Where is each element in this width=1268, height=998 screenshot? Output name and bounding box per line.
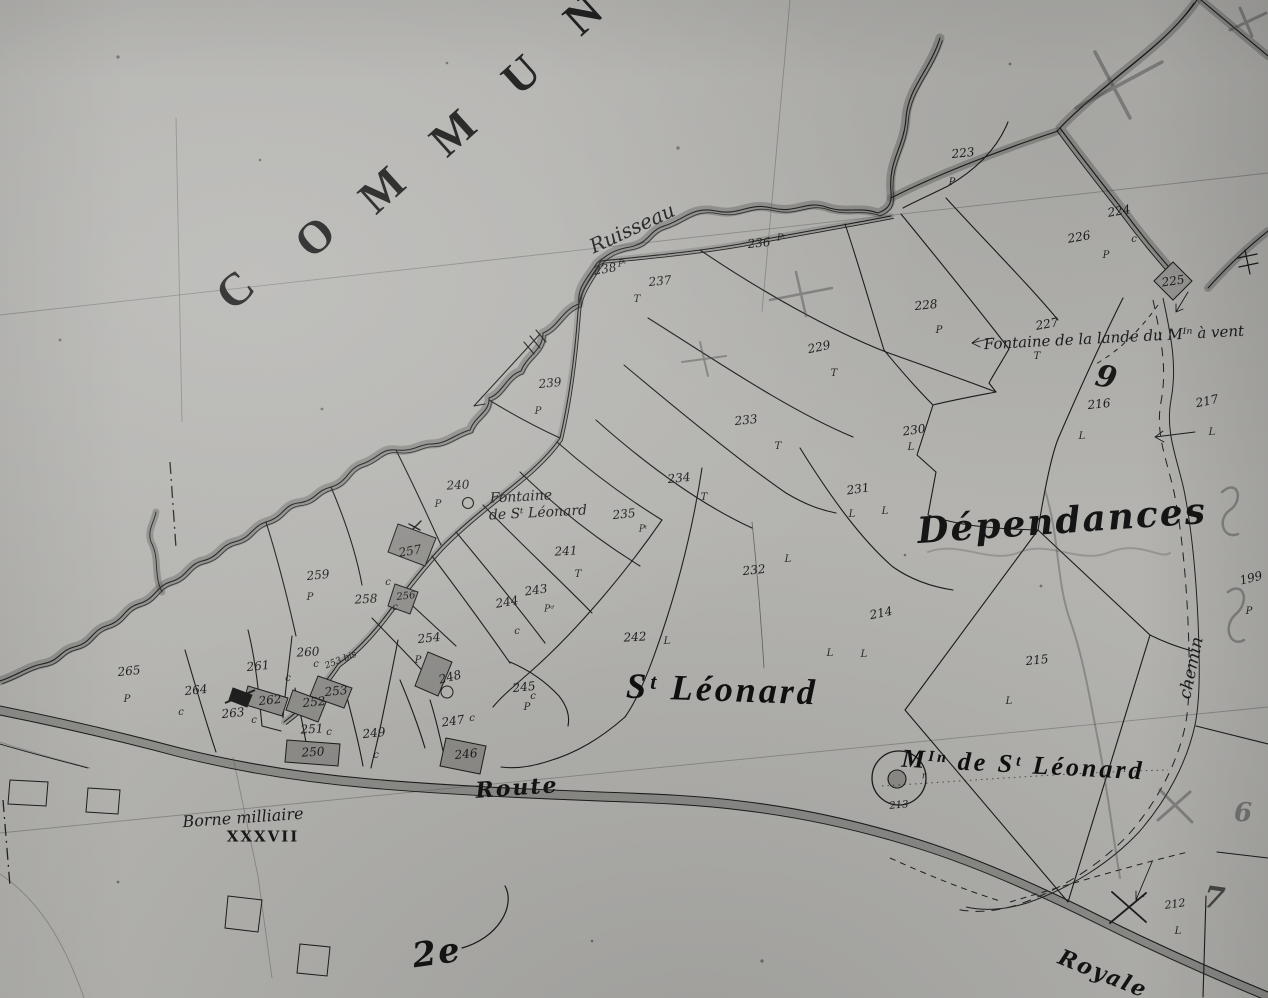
class-letter-label: c	[514, 627, 520, 637]
class-letter-label: L	[908, 443, 915, 453]
parcel-number-label: 244	[495, 594, 520, 610]
class-letter-label: c	[385, 578, 391, 588]
class-letter-label: P	[1103, 251, 1110, 261]
parcel-number-label: 252	[302, 695, 326, 709]
fontaine-stleonard-label-2: de Sᵗ Léonard	[489, 503, 588, 522]
class-letter-label: P	[1246, 607, 1253, 617]
cadastral-map-sheet: COMMUNRuisseauFontaine de la lande du Mᴵ…	[0, 0, 1268, 998]
parcel-number-label: 242	[623, 630, 647, 643]
commune-letter: C	[207, 262, 262, 318]
class-letter-label: Pᵗ	[618, 261, 626, 270]
parcel-number-label: 225	[1161, 273, 1185, 288]
class-letter-label: L	[1209, 428, 1216, 438]
parcel-number-label: 227	[1035, 316, 1060, 332]
parcel-number-label: 261	[246, 659, 270, 673]
pencil-numeral-6: 6	[1234, 800, 1252, 826]
parcel-number-label: 237	[648, 274, 672, 288]
parcel-number-label: 229	[807, 339, 832, 356]
parcel-number-label: 226	[1067, 229, 1092, 245]
commune-letter: N	[555, 0, 610, 43]
parcel-number-label: 249	[362, 726, 386, 740]
class-letter-label: P	[949, 178, 956, 188]
parcel-number-label: 259	[306, 568, 330, 582]
royale-label: Royale	[1055, 946, 1151, 998]
class-letter-label: c	[1131, 235, 1137, 245]
class-letter-label: P	[415, 656, 422, 666]
parcel-number-label: 263	[221, 706, 245, 720]
parcel-number-label: 217	[1195, 393, 1220, 410]
parcel-number-label: 212	[1164, 897, 1186, 911]
parcel-number-label: 260	[296, 645, 320, 658]
parcel-number-label: 243	[524, 582, 548, 597]
parcel-number-label: 257	[398, 543, 423, 559]
parcel-number-label: 253 bis	[324, 651, 358, 672]
commune-letter: O	[286, 208, 343, 266]
ink-numeral-9: 9	[1093, 361, 1120, 395]
class-letter-label: c	[530, 692, 536, 702]
parcel-number-label: 231	[846, 481, 870, 496]
route-label: Route	[475, 774, 559, 802]
parcel-number-label: 224	[1107, 203, 1132, 219]
parcel-number-label: 241	[554, 544, 578, 557]
parcel-number-label: 236	[747, 236, 771, 250]
parcel-number-label: 246	[454, 747, 478, 761]
parcel-number-label: 213	[889, 800, 909, 812]
class-letter-label: P	[435, 500, 442, 510]
class-letter-label: L	[664, 637, 671, 647]
class-letter-label: P	[524, 703, 531, 713]
class-letter-label: Pᵗ	[639, 526, 647, 535]
class-letter-label: c	[251, 716, 257, 726]
parcel-number-label: 214	[869, 605, 894, 622]
class-letter-label: c	[373, 751, 379, 761]
class-letter-label: T	[701, 493, 708, 503]
pencil-numeral-7: 7	[1202, 883, 1227, 916]
parcel-number-label: 233	[734, 413, 758, 427]
class-letter-label: L	[861, 650, 868, 660]
class-letter-label: c	[285, 674, 291, 684]
parcel-number-label: 228	[914, 298, 938, 312]
class-letter-label: Pᵈ	[544, 606, 554, 615]
borne-milliaire-number: XXXVII	[227, 830, 300, 845]
class-letter-label: c	[178, 708, 184, 718]
commune-letter: U	[493, 47, 548, 103]
parcel-number-label: 230	[902, 422, 926, 437]
map-labels-layer: COMMUNRuisseauFontaine de la lande du Mᴵ…	[0, 0, 1268, 998]
commune-letter: M	[421, 101, 484, 164]
parcel-number-label: 248	[437, 668, 462, 685]
class-letter-label: T	[775, 442, 782, 452]
class-letter-label: T	[634, 295, 641, 305]
parcel-number-label: 240	[446, 478, 470, 491]
class-letter-label: P	[936, 326, 943, 336]
class-letter-label: L	[827, 649, 834, 659]
fontaine-lande-label: Fontaine de la lande du Mᴵⁿ à vent	[984, 324, 1245, 353]
class-letter-label: c	[469, 714, 475, 724]
parcel-number-label: 251	[300, 722, 324, 735]
fontaine-stleonard-label-1: Fontaine	[490, 488, 553, 505]
class-letter-label: L	[785, 555, 792, 565]
moulin-st-leonard-label: Mᴵⁿ de Sᵗ Léonard	[901, 746, 1145, 785]
class-letter-label: L	[849, 510, 856, 520]
parcel-number-label: 247	[441, 713, 465, 728]
parcel-number-label: 199	[1238, 569, 1263, 586]
parcel-number-label: 262	[258, 693, 282, 707]
parcel-number-label: 254	[417, 631, 441, 645]
parcel-number-label: 239	[538, 376, 562, 390]
class-letter-label: c	[326, 728, 332, 738]
class-letter-label: P	[124, 695, 131, 705]
parcel-number-label: 215	[1025, 653, 1049, 667]
class-letter-label: L	[1006, 697, 1013, 707]
class-letter-label: Pᵗ	[777, 235, 785, 244]
parcel-number-label: 256	[396, 591, 416, 603]
parcel-number-label: 223	[951, 146, 975, 160]
ruisseau-label: Ruisseau	[586, 200, 677, 257]
class-letter-label: L	[882, 507, 889, 517]
class-letter-label: P	[535, 407, 542, 417]
class-letter-label: L	[1175, 927, 1182, 937]
class-letter-label: L	[1079, 432, 1086, 442]
class-letter-label: P	[307, 593, 314, 603]
parcel-number-label: 235	[612, 507, 636, 521]
parcel-number-label: 264	[184, 683, 208, 697]
parcel-number-label: 234	[667, 471, 691, 485]
class-letter-label: r	[922, 773, 926, 782]
class-letter-label: c	[392, 603, 398, 613]
commune-letter: M	[350, 158, 413, 221]
st-leonard-label: Sᵗ Léonard	[626, 668, 819, 711]
parcel-number-label: 250	[301, 745, 325, 758]
class-letter-label: T	[575, 570, 582, 580]
sheet-mark: 2e	[410, 933, 464, 974]
parcel-number-label: 253	[324, 684, 348, 698]
parcel-number-label: 216	[1087, 397, 1111, 411]
parcel-number-label: 232	[742, 563, 766, 577]
parcel-number-label: 238	[593, 261, 618, 277]
parcel-number-label: 258	[354, 592, 378, 605]
class-letter-label: c	[313, 660, 319, 670]
class-letter-label: T	[831, 369, 838, 379]
chemin-label: chemin	[1177, 635, 1207, 700]
parcel-number-label: 265	[117, 664, 141, 678]
class-letter-label: T	[1034, 352, 1041, 362]
dependances-label: Dépendances	[916, 493, 1208, 549]
